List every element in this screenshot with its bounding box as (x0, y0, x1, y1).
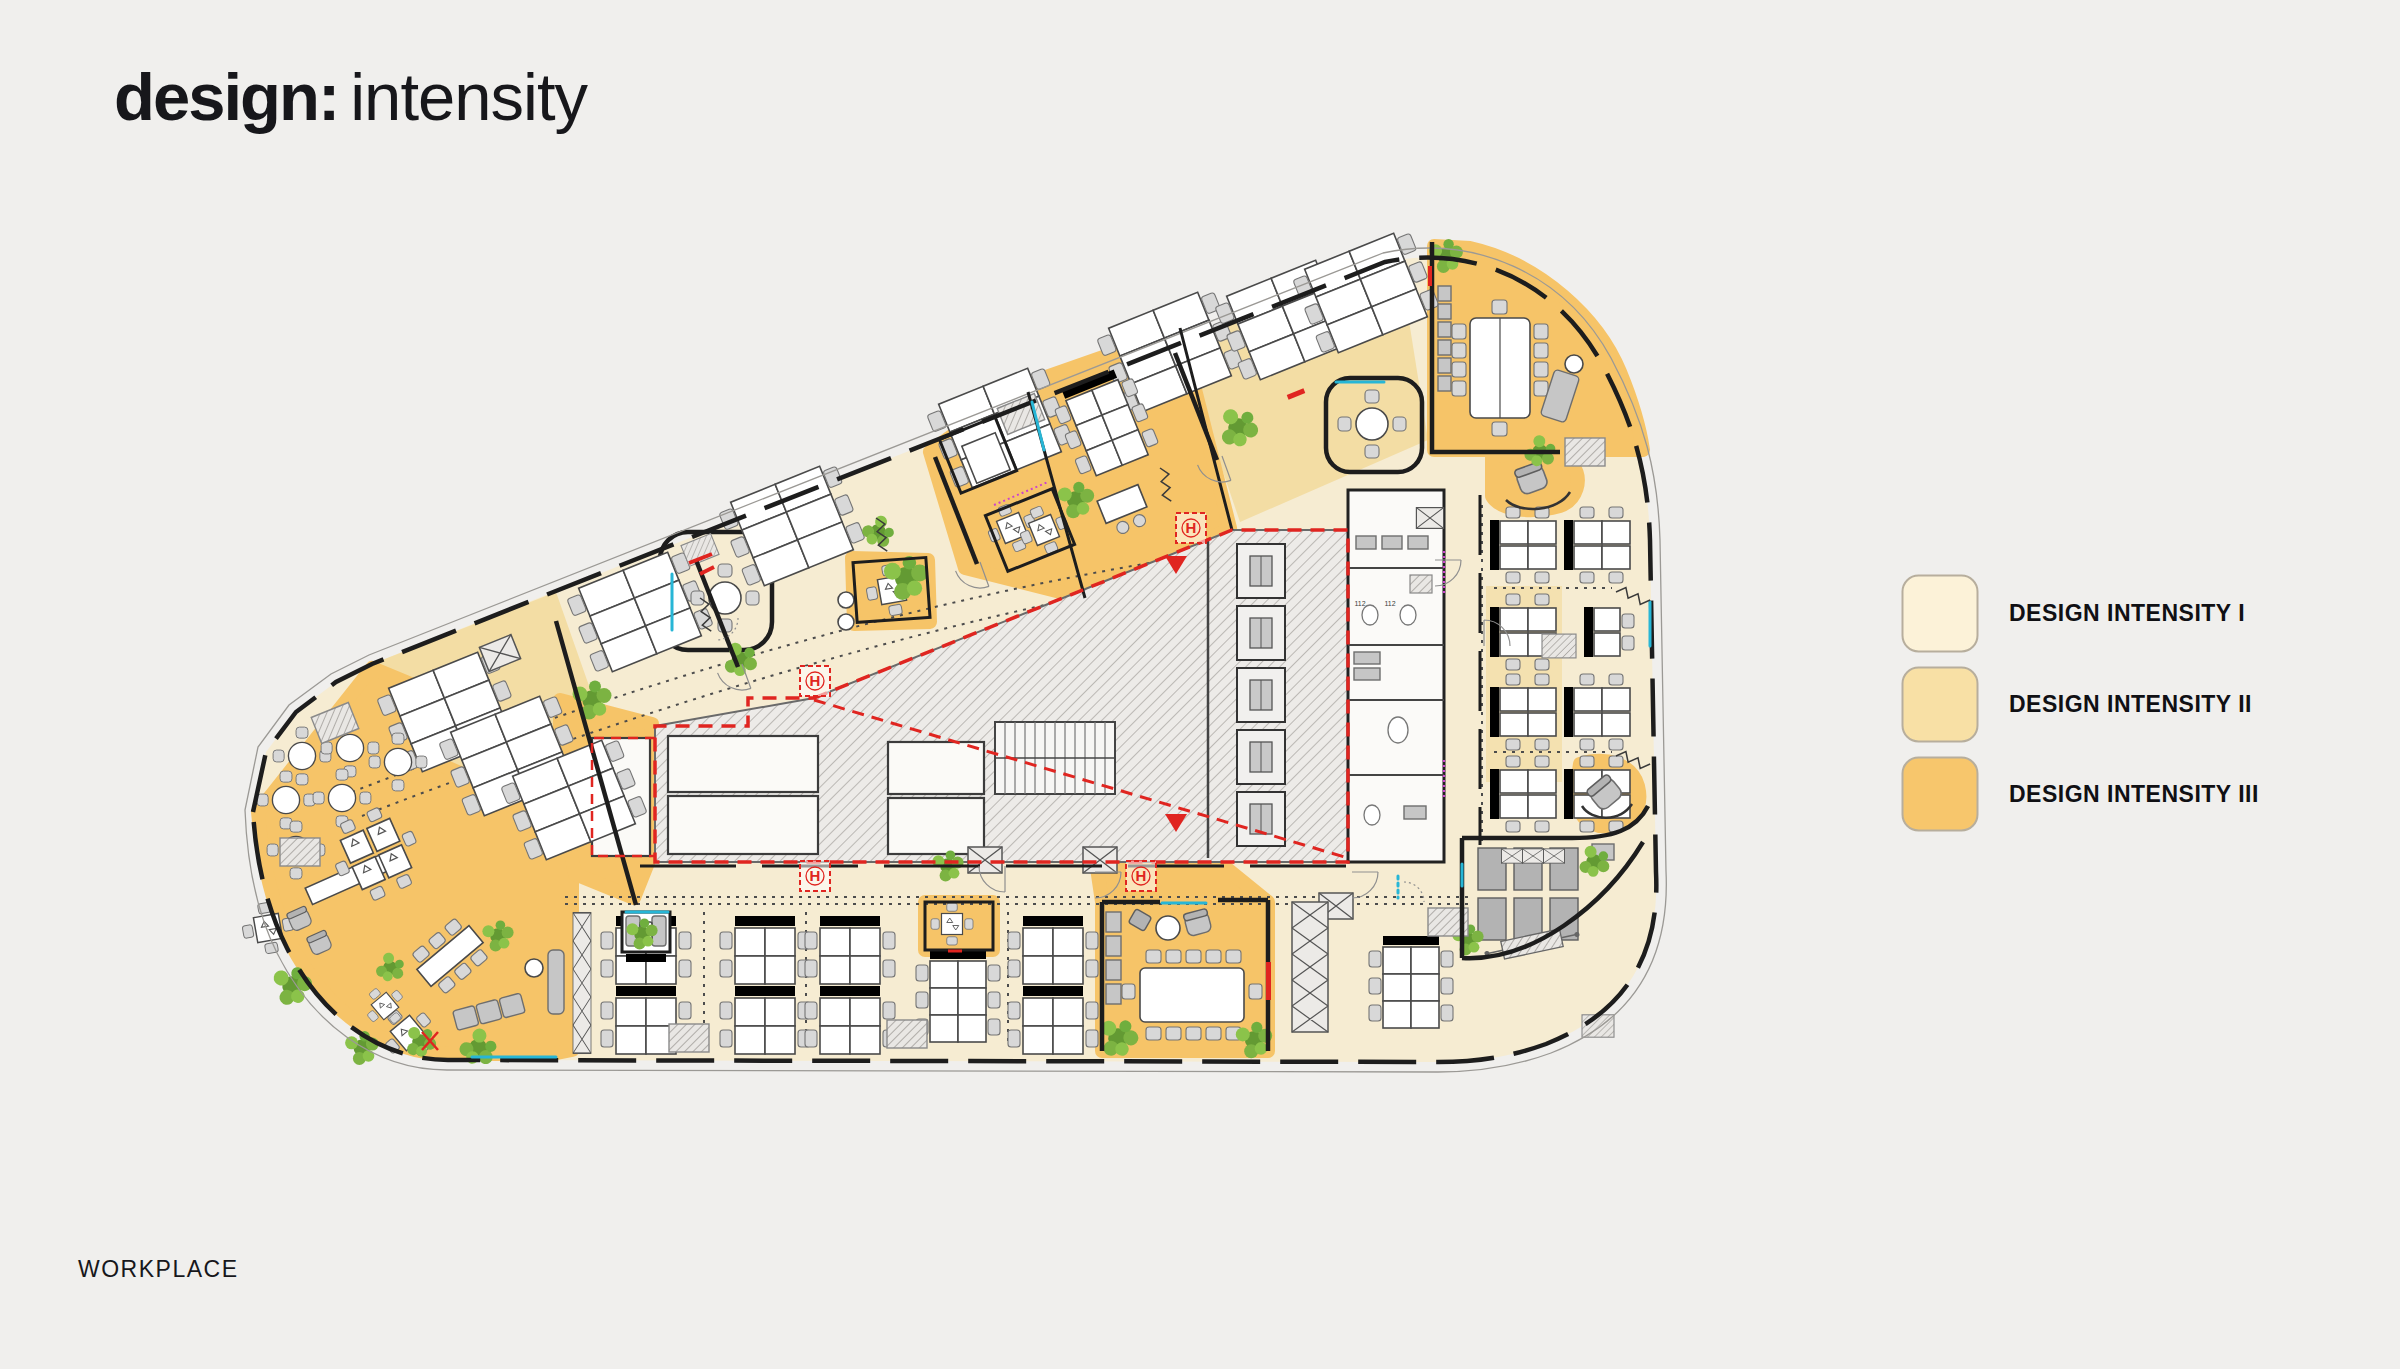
swatch-rect (1903, 668, 1978, 742)
service-band (1348, 490, 1444, 862)
legend-label: DESIGN INTENSITY I (2009, 600, 2245, 627)
slide: design:intensity (0, 0, 2400, 1369)
legend-swatch-intensity-2 (1901, 666, 1979, 743)
legend-swatch-intensity-3 (1901, 756, 1979, 832)
room-number: 112 (1384, 600, 1395, 607)
room-number: 112 (1354, 600, 1365, 607)
h-marker-label: H (1136, 867, 1147, 884)
legend-label: DESIGN INTENSITY II (2009, 691, 2252, 718)
legend-item-intensity-3: DESIGN INTENSITY III (1901, 756, 2259, 832)
footer-label: WORKPLACE (78, 1256, 238, 1283)
legend: DESIGN INTENSITY I DESIGN INTENSITY II D… (1901, 574, 2259, 845)
h-marker-label: H (1186, 519, 1197, 536)
legend-label: DESIGN INTENSITY III (2009, 781, 2259, 808)
legend-item-intensity-2: DESIGN INTENSITY II (1901, 666, 2259, 743)
swatch-rect (1903, 758, 1978, 831)
legend-swatch-intensity-1 (1901, 574, 1979, 653)
legend-item-intensity-1: DESIGN INTENSITY I (1901, 574, 2259, 653)
h-marker-label: H (810, 672, 821, 689)
h-marker-label: H (810, 867, 821, 884)
swatch-rect (1903, 576, 1978, 652)
